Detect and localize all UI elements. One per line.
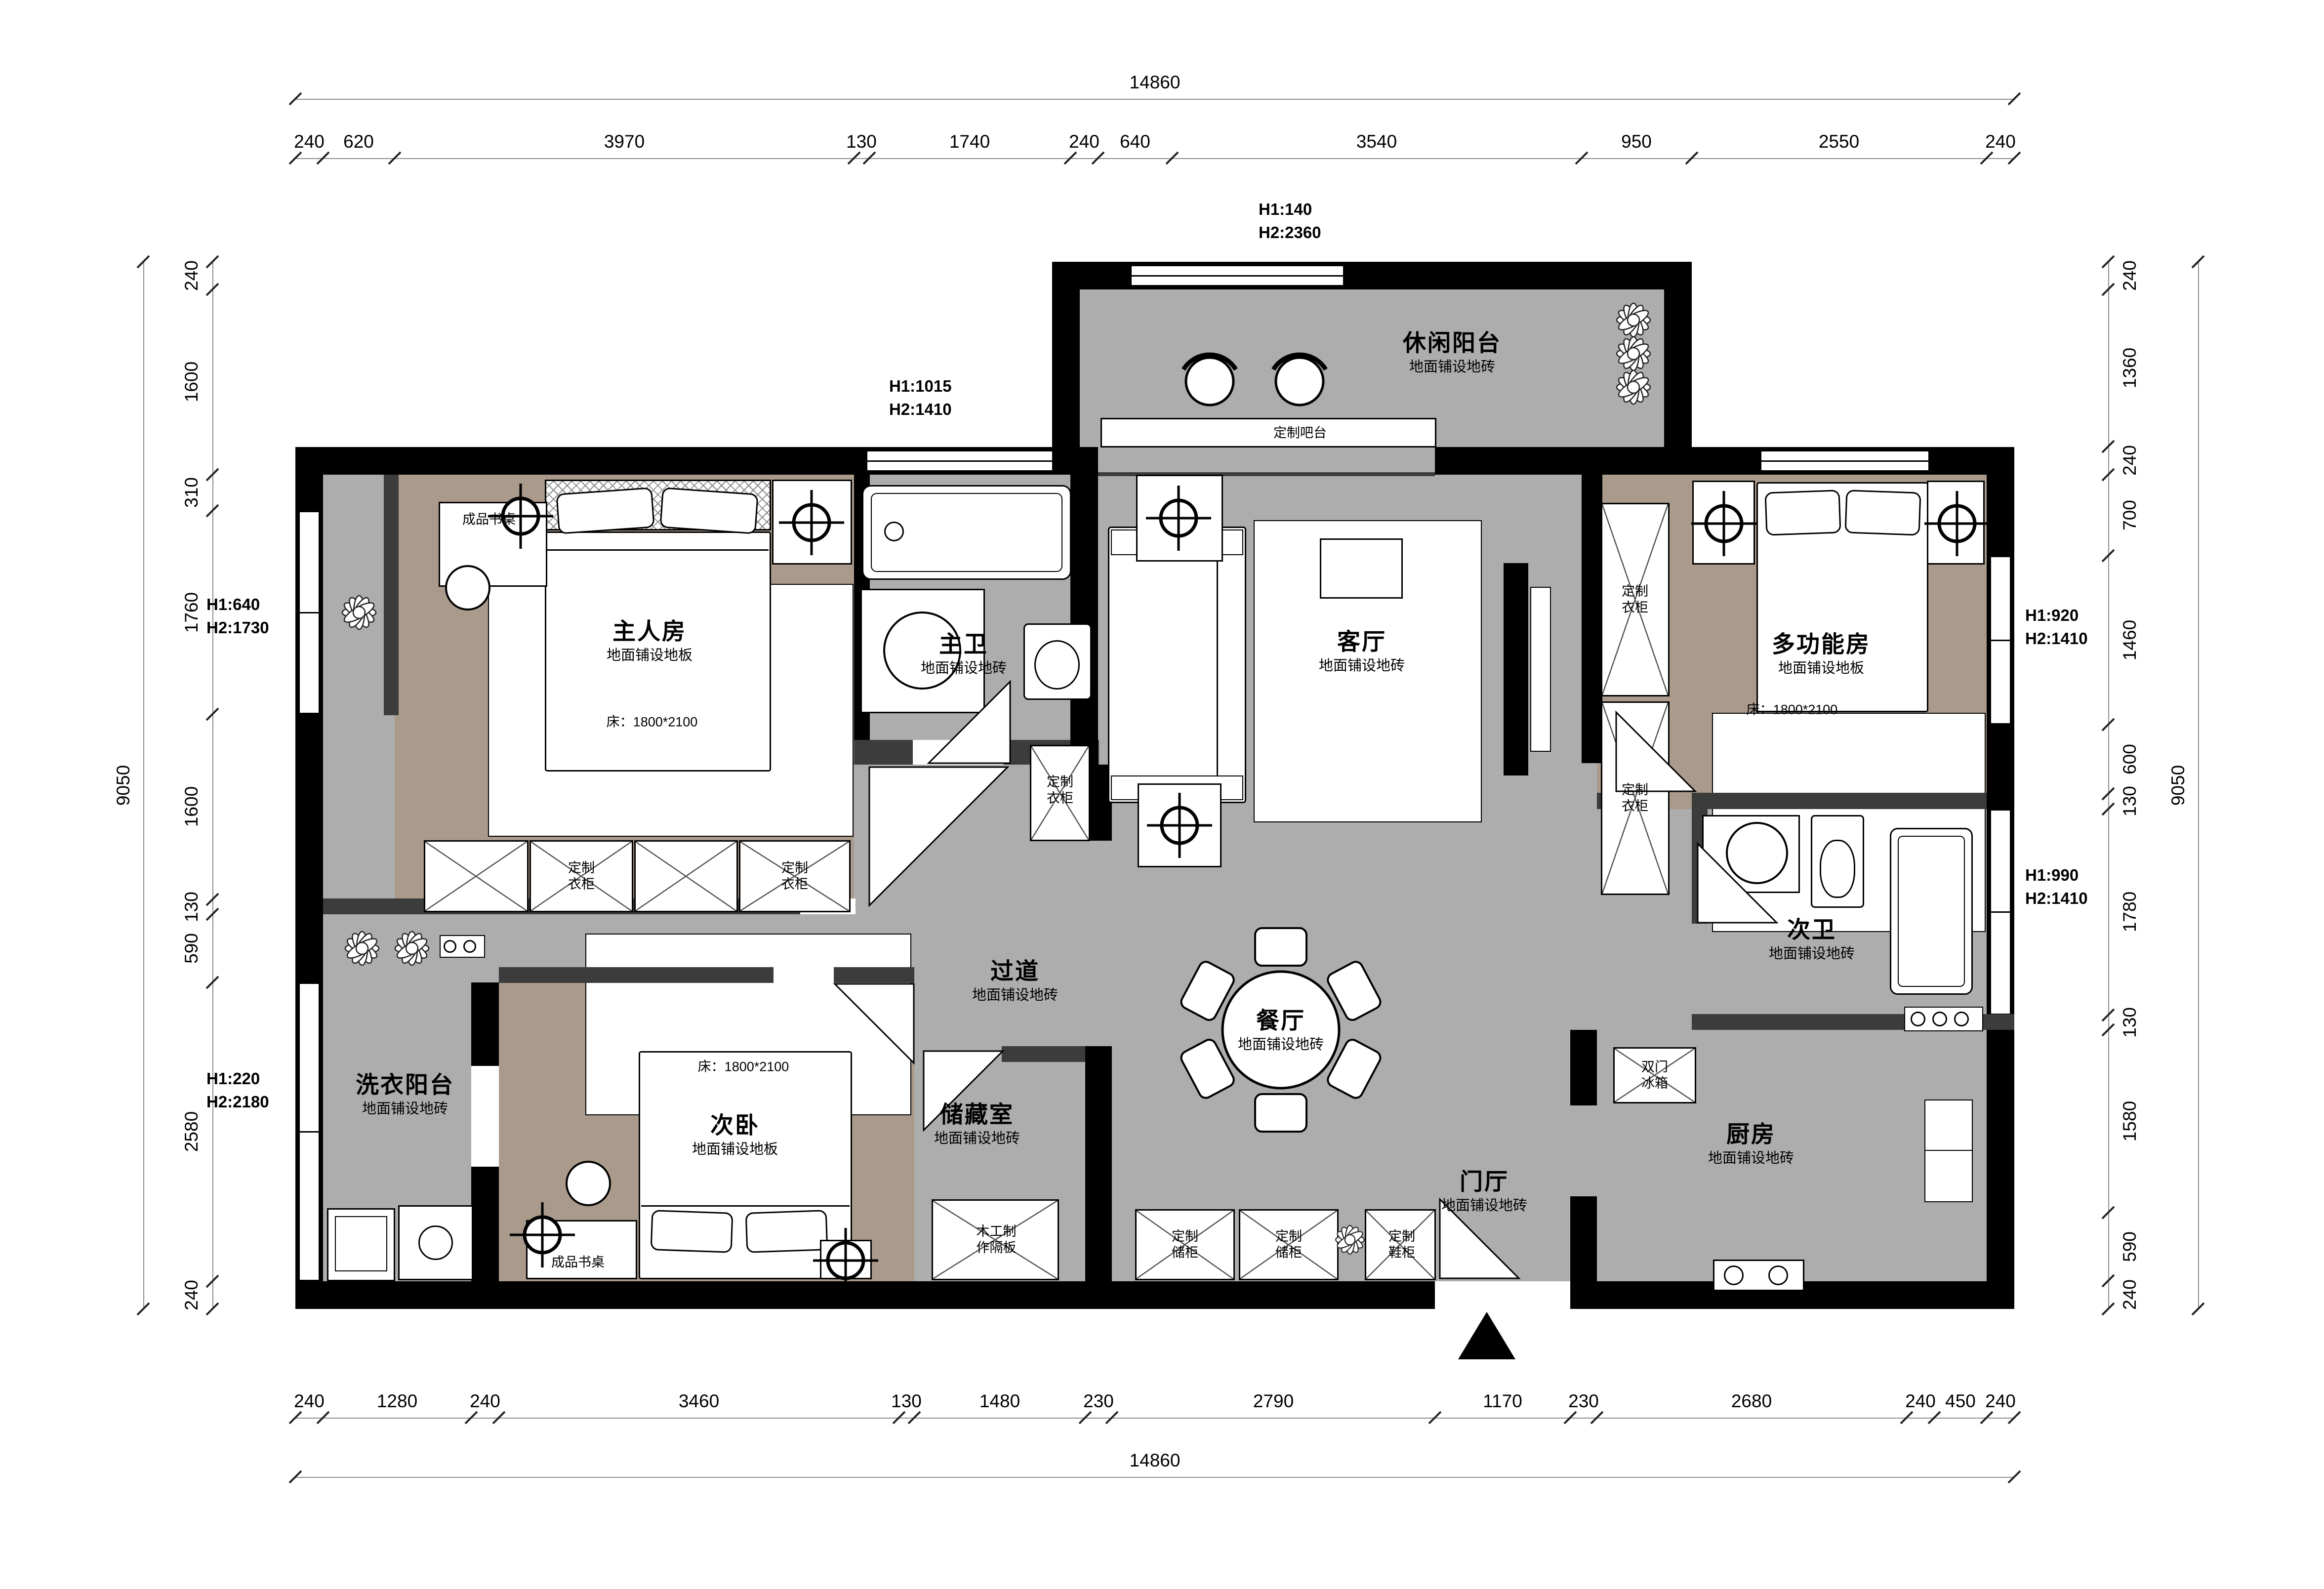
dimension-line [2198,262,2199,1309]
dimension-label: 1460 [2120,620,2140,660]
wall-master-niche [384,475,399,715]
dimension-label: 450 [1945,1391,1976,1412]
furniture-label: 定制 衣柜 [568,860,595,893]
sofa [1108,527,1246,803]
furniture-label: 成品书桌 [551,1255,605,1271]
door-gap-master-bath [913,740,1004,765]
dimension-label: 590 [181,933,202,964]
room-label: 门厅 [1460,1163,1509,1197]
dimension-label: 130 [2120,786,2140,816]
room-sublabel: 地面铺设地砖 [362,1097,448,1118]
laundry-sink [335,1216,387,1271]
dimension-label: 130 [891,1391,922,1412]
second-nightstand [820,1240,872,1279]
room-sublabel: 地面铺设地砖 [1409,355,1495,376]
dimension-label: 1600 [181,786,202,827]
room-sublabel: 地面铺设地砖 [934,1127,1020,1147]
faucet-knob [1911,1012,1925,1026]
pillow [1765,489,1841,535]
furniture-label: 床：1800*2100 [1747,702,1838,718]
window-multifunction-top [1760,450,1930,472]
dimension-label: 1170 [1483,1391,1522,1412]
room-sublabel: 地面铺设地砖 [972,983,1058,1004]
wall-second-bedroom-top-a [499,967,774,983]
dimension-line [295,1418,2014,1419]
furniture-label: 木工制 作隔板 [977,1223,1017,1256]
master-nightstand [772,480,852,565]
dimension-label: 240 [1985,1391,2016,1412]
furniture-label: 定制吧台 [1273,425,1327,442]
dimension-label: 240 [2120,260,2140,291]
room-sublabel: 地面铺设地板 [1778,656,1864,677]
furniture-label: 定制 鞋柜 [1388,1228,1415,1261]
height-annotation: H1:640 H2:1730 [206,593,269,639]
kitchen-cabinet [1924,1100,1973,1202]
room-label: 主人房 [612,612,687,647]
dimension-label: 130 [181,892,202,922]
room-sublabel: 地面铺设地砖 [1238,1033,1324,1054]
wall-storage-right [1085,1046,1112,1281]
wall-tv-feature [1504,563,1528,775]
dimension-label: 230 [1568,1391,1599,1412]
height-annotation: H1:920 H2:1410 [2025,604,2088,650]
dimension-label: 240 [294,1391,325,1412]
dimension-line [295,99,2014,100]
door-gap-laundry [471,1066,499,1167]
dimension-label: 9050 [2168,765,2189,806]
dimension-label: 240 [1985,131,2016,152]
bathtub2-inner [1898,836,1965,987]
room-label: 洗衣阳台 [356,1066,454,1100]
room-label: 次卧 [710,1106,760,1141]
dimension-label: 240 [181,1280,202,1310]
nightstand [1927,481,1985,565]
height-annotation: H1:1015 H2:1410 [889,374,952,421]
window-second-bath [1990,809,2011,1015]
dimension-label: 620 [343,131,374,152]
dimension-label: 950 [1621,131,1652,152]
window-master-left [298,511,320,714]
kitchen-cabinet-line [1925,1150,1972,1151]
furniture-label: 定制 储柜 [1275,1228,1302,1261]
room-sublabel: 地面铺设地板 [692,1138,778,1158]
dimension-label: 700 [2120,500,2140,530]
dimension-label: 9050 [113,765,134,806]
dimension-label: 240 [1069,131,1100,152]
furniture-label: 双门 冰箱 [1641,1059,1668,1092]
dimension-label: 1760 [181,592,202,633]
room-sublabel: 地面铺设地砖 [1769,942,1855,963]
dimension-label: 640 [1120,131,1150,152]
pillow [659,487,758,534]
furniture-label: 定制 衣柜 [1622,583,1648,616]
side-table [1136,475,1223,562]
side-table [1138,783,1222,867]
entry-door-gap [1435,1281,1570,1309]
dimension-label: 2550 [1819,131,1859,152]
dimension-label: 240 [2120,445,2140,476]
knob [463,940,476,953]
furniture-label: 成品书桌 [462,512,516,528]
pillow [556,487,654,534]
dimension-label: 240 [1905,1391,1936,1412]
dimension-label: 590 [2120,1231,2140,1262]
master-bed-line [547,549,769,551]
height-annotation: H1:220 H2:2180 [206,1067,269,1113]
dimension-label: 1480 [979,1391,1020,1412]
room-label: 客厅 [1337,623,1386,657]
washer-door [418,1225,453,1260]
dimension-label: 130 [2120,1007,2140,1038]
room-sublabel: 地面铺设地砖 [1319,654,1405,675]
nightstand [1692,481,1755,565]
dimension-label: 1580 [2120,1101,2140,1141]
dimension-label: 240 [2120,1279,2140,1310]
wall-living-right [1582,475,1602,763]
master-closet [634,840,738,912]
dimension-label: 14860 [1130,1450,1181,1471]
dimension-label: 1360 [2120,348,2140,388]
dimension-label: 600 [2120,744,2140,774]
window-laundry [298,982,320,1281]
furniture-label: 定制 衣柜 [1622,782,1648,815]
dimension-label: 1280 [377,1391,417,1412]
toilet-bowl [1034,640,1080,690]
coffee-table [1320,538,1403,599]
height-annotation: H1:990 H2:1410 [2025,863,2088,910]
room-label: 过道 [990,952,1040,986]
pillow [651,1210,734,1253]
pillow [1845,489,1921,535]
room-label: 厨房 [1726,1115,1776,1149]
master-stool [445,565,490,611]
dimension-line [2108,262,2109,1309]
dimension-label: 2790 [1253,1391,1294,1412]
dimension-label: 240 [181,260,202,291]
furniture-label: 定制 衣柜 [1047,774,1073,807]
dimension-label: 310 [181,477,202,508]
wall-second-bedroom-top-b [834,967,914,983]
dimension-label: 130 [846,131,877,152]
entrance-arrow-icon [1458,1312,1515,1359]
window-balcony [1130,265,1345,286]
wall-balcony-right [1664,262,1692,475]
dimension-label: 240 [294,131,325,152]
pillow [745,1210,828,1253]
knob [444,940,456,953]
master-closet [424,840,529,912]
second-stool [566,1161,611,1206]
room-sublabel: 地面铺设地砖 [1441,1194,1527,1215]
burner [1768,1265,1788,1285]
dimension-line [212,262,213,1309]
room-label: 次卫 [1787,911,1836,945]
dimension-line [295,1477,2014,1478]
room-label: 餐厅 [1256,1002,1305,1036]
furniture-label: 定制 储柜 [1172,1228,1198,1261]
toilet2-bowl [1820,840,1855,898]
faucet-knob [1954,1012,1969,1026]
furniture-label: 床：1800*2100 [698,1059,789,1075]
room-sublabel: 地面铺设地砖 [921,656,1007,677]
furniture-label: 定制 衣柜 [781,860,808,893]
room-label: 休闲阳台 [1403,324,1502,358]
window-master-bath [866,450,1075,472]
wall-balcony-left [1052,262,1080,475]
room-sublabel: 地面铺设地砖 [1708,1146,1794,1167]
dimension-label: 3970 [604,131,645,152]
room-label: 储藏室 [940,1096,1014,1130]
door-gap-kitchen [1570,1105,1597,1196]
dimension-label: 230 [1083,1391,1114,1412]
furniture-label: 床：1800*2100 [607,714,698,731]
height-annotation: H1:140 H2:2360 [1259,198,1321,244]
bathtub-drain [884,522,904,541]
dimension-label: 3460 [679,1391,719,1412]
dimension-line [143,262,144,1309]
window-multifunction-right [1990,556,2011,725]
sofa-seat-line [1217,555,1218,775]
tv-console [1530,587,1551,752]
dimension-label: 3540 [1356,131,1397,152]
dimension-label: 240 [470,1391,500,1412]
dimension-label: 2580 [181,1111,202,1152]
room-label: 多功能房 [1772,625,1871,659]
custom-bar-counter [1101,418,1436,448]
floor-plan-canvas: 1486024062039701301740240640354095025502… [0,0,2324,1589]
burner [1724,1265,1744,1285]
dimension-line [295,158,2014,159]
room-label: 主卫 [939,625,988,659]
dimension-label: 2680 [1731,1391,1772,1412]
dimension-label: 14860 [1130,72,1181,93]
wall-balcony-bottom-right [1435,447,1692,475]
room-sublabel: 地面铺设地板 [607,644,693,664]
faucet-knob [1932,1012,1947,1026]
dimension-label: 1740 [949,131,990,152]
second-bed-line [641,1205,850,1207]
bath2-sink [1726,822,1788,884]
wall-master-bath-right [1070,475,1098,766]
dimension-label: 1780 [2120,892,2140,932]
dimension-label: 1600 [181,362,202,402]
